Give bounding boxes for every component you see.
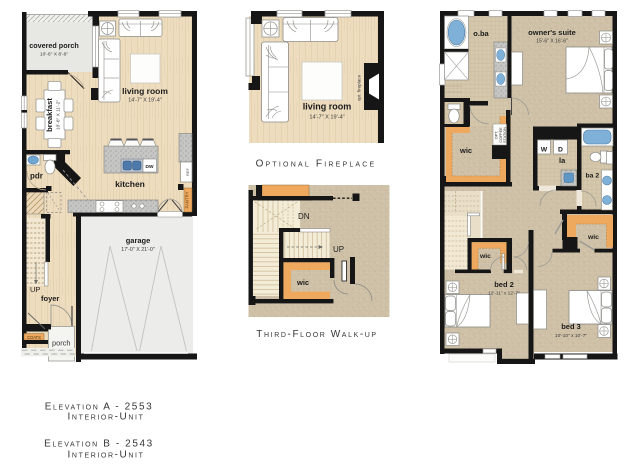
svg-text:10'-6" X 8'-6": 10'-6" X 8'-6" [40,52,68,58]
svg-text:Elevation B - 2543: Elevation B - 2543 [44,439,154,450]
svg-text:wic: wic [459,146,472,155]
svg-text:wic: wic [296,278,309,287]
svg-text:la: la [559,156,566,165]
svg-text:UP: UP [30,285,40,294]
svg-text:STATION: STATION [503,127,507,143]
svg-text:bed 2: bed 2 [494,280,514,289]
svg-text:Interior-Unit: Interior-Unit [68,412,145,423]
svg-text:DN: DN [298,212,310,221]
svg-text:porch: porch [52,339,71,348]
svg-text:D: D [558,147,563,154]
svg-text:ba 2: ba 2 [586,173,600,180]
svg-text:owner's suite: owner's suite [528,28,576,37]
svg-text:17'-0" X 21'-0": 17'-0" X 21'-0" [121,247,155,253]
svg-text:15'-6" X 16'-6": 15'-6" X 16'-6" [536,39,568,45]
svg-text:12'-11" x 12'-7": 12'-11" x 12'-7" [488,291,520,297]
svg-text:UP: UP [333,245,344,254]
svg-text:bed 3: bed 3 [561,322,581,331]
svg-text:garage: garage [126,236,151,245]
svg-text:kitchen: kitchen [115,179,145,189]
svg-text:breakfast: breakfast [45,98,54,132]
svg-text:wic: wic [479,253,491,260]
svg-text:COATS: COATS [27,335,41,340]
svg-text:Third-Floor Walk-up: Third-Floor Walk-up [256,329,377,340]
svg-text:DW: DW [146,164,154,170]
svg-text:10'-10" x 10'-7": 10'-10" x 10'-7" [555,333,587,339]
svg-text:14'-7" X 19'-4": 14'-7" X 19'-4" [128,98,162,104]
svg-text:living room: living room [122,86,168,96]
svg-text:living room: living room [303,102,352,112]
svg-text:PANTRY: PANTRY [184,191,189,208]
svg-text:wic: wic [587,234,599,241]
svg-text:opt. fireplace: opt. fireplace [357,74,362,101]
svg-text:14'-7" X 19'-4": 14'-7" X 19'-4" [309,115,344,121]
svg-text:Optional Fireplace: Optional Fireplace [256,159,377,170]
svg-text:Interior-Unit: Interior-Unit [68,450,145,461]
svg-text:covered porch: covered porch [29,41,79,50]
svg-text:foyer: foyer [41,294,59,303]
svg-text:REF: REF [185,167,190,176]
svg-text:pdr: pdr [30,172,43,181]
svg-text:10'-6" X 11'-2": 10'-6" X 11'-2" [56,100,62,130]
svg-text:o.ba: o.ba [473,29,489,38]
svg-text:W: W [541,147,548,154]
